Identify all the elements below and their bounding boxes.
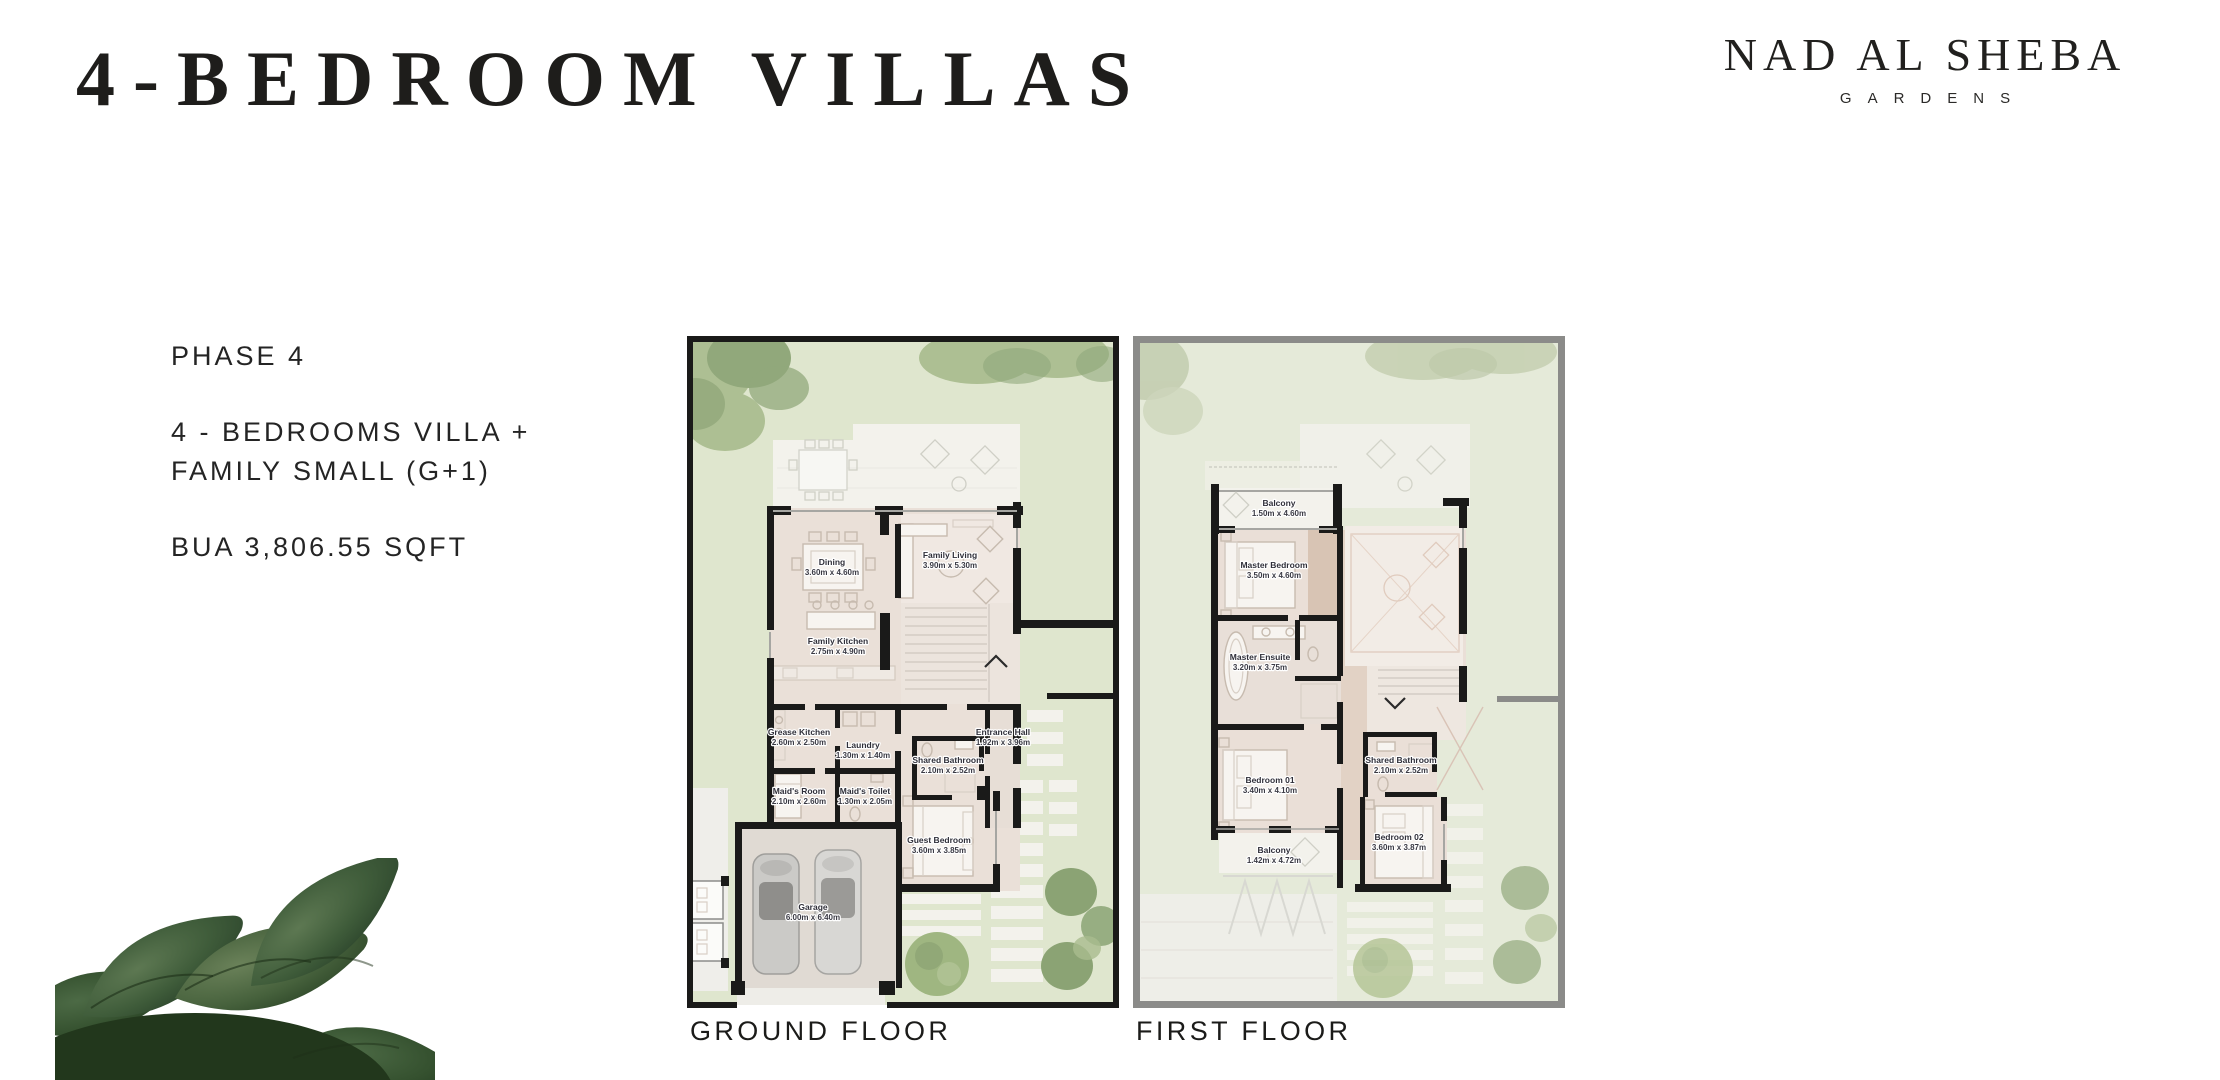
- room-label: Balcony: [1257, 845, 1290, 855]
- brand-tagline: GARDENS: [1690, 90, 2160, 107]
- svg-text:2.10m x 2.52m: 2.10m x 2.52m: [1374, 766, 1428, 775]
- svg-text:3.60m x 4.60m: 3.60m x 4.60m: [805, 568, 859, 577]
- room-label: Master Bedroom: [1240, 560, 1308, 570]
- svg-text:2.75m x 4.90m: 2.75m x 4.90m: [811, 647, 865, 656]
- room-label: Grease Kitchen: [768, 727, 830, 737]
- svg-text:2.10m x 2.60m: 2.10m x 2.60m: [772, 797, 826, 806]
- svg-text:2.10m x 2.52m: 2.10m x 2.52m: [921, 766, 975, 775]
- page-title: 4-BEDROOM VILLAS: [76, 34, 1149, 124]
- unit-type-text: 4 - BEDROOMS VILLA +FAMILY SMALL (G+1): [171, 413, 530, 491]
- svg-text:6.00m x 6.40m: 6.00m x 6.40m: [786, 913, 840, 922]
- first-floor-label: FIRST FLOOR: [1136, 1016, 1351, 1047]
- leaf-decoration: [55, 858, 435, 1080]
- leaf-cluster: [55, 858, 435, 1080]
- svg-text:3.60m x 3.85m: 3.60m x 3.85m: [912, 846, 966, 855]
- room-label: Laundry: [846, 740, 880, 750]
- room-label: Maid's Toilet: [840, 786, 891, 796]
- svg-text:1.50m x 4.60m: 1.50m x 4.60m: [1252, 509, 1306, 518]
- svg-text:3.90m x 5.30m: 3.90m x 5.30m: [923, 561, 977, 570]
- ground-floor-label: GROUND FLOOR: [690, 1016, 951, 1047]
- svg-text:2.60m x 2.50m: 2.60m x 2.50m: [772, 738, 826, 747]
- room-label: Guest Bedroom: [907, 835, 971, 845]
- svg-text:3.50m x 4.60m: 3.50m x 4.60m: [1247, 571, 1301, 580]
- ground-floor-plan: Dining 3.60m x 4.60m Family Living 3.90m…: [687, 336, 1119, 1008]
- svg-text:3.60m x 3.87m: 3.60m x 3.87m: [1372, 843, 1426, 852]
- room-label: Shared Bathroom: [912, 755, 984, 765]
- room-label: Maid's Room: [773, 786, 826, 796]
- svg-text:1.92m x 3.96m: 1.92m x 3.96m: [976, 738, 1030, 747]
- brand-logo: NAD AL SHEBA GARDENS: [1690, 28, 2160, 107]
- svg-text:1.42m x 4.72m: 1.42m x 4.72m: [1247, 856, 1301, 865]
- brand-name: NAD AL SHEBA: [1690, 28, 2160, 81]
- svg-text:3.20m x 3.75m: 3.20m x 3.75m: [1233, 663, 1287, 672]
- room-label: Shared Bathroom: [1365, 755, 1437, 765]
- phase-text: PHASE 4: [171, 337, 530, 376]
- room-label: Dining: [819, 557, 845, 567]
- room-label: Family Kitchen: [808, 636, 868, 646]
- first-floor-plan: Balcony 1.50m x 4.60m Master Bedroom 3.5…: [1133, 336, 1565, 1008]
- room-label: Master Ensuite: [1230, 652, 1291, 662]
- unit-info: PHASE 4 4 - BEDROOMS VILLA +FAMILY SMALL…: [171, 337, 530, 604]
- bua-text: BUA 3,806.55 SQFT: [171, 528, 530, 567]
- room-label: Balcony: [1262, 498, 1295, 508]
- room-label: Entrance Hall: [976, 727, 1030, 737]
- room-label: Family Living: [923, 550, 977, 560]
- room-label: Garage: [798, 902, 828, 912]
- svg-text:3.40m x 4.10m: 3.40m x 4.10m: [1243, 786, 1297, 795]
- room-label: Bedroom 01: [1245, 775, 1294, 785]
- gf-car-2: [815, 850, 861, 974]
- room-label: Bedroom 02: [1374, 832, 1423, 842]
- svg-text:1.30m x 1.40m: 1.30m x 1.40m: [836, 751, 890, 760]
- svg-text:1.30m x 2.05m: 1.30m x 2.05m: [838, 797, 892, 806]
